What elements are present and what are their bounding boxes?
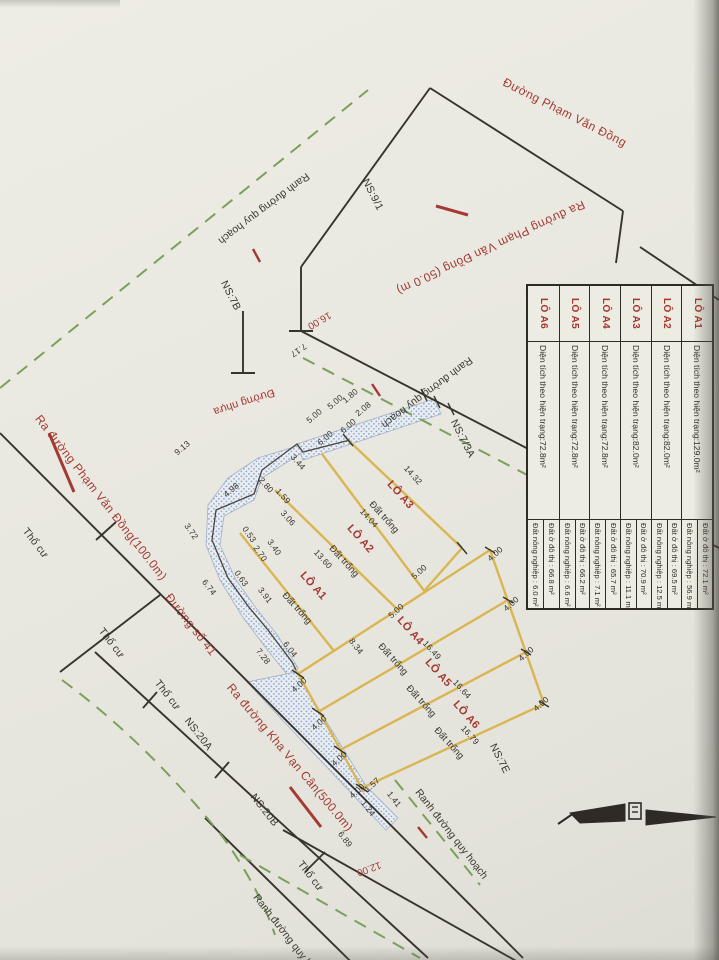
planning-label-topleft: Ranh đường quy hoạch	[216, 170, 312, 246]
dimension-label: 16.79	[459, 723, 481, 746]
table-cell-agri: Đất nông nghiệp : 6.0 m²	[528, 520, 543, 608]
dimension-label: 1.59	[274, 486, 293, 506]
table-row: LÔ A3 Diện tích theo hiện trạng:82.0m² Đ…	[620, 286, 651, 608]
existing-path-strip	[206, 399, 441, 830]
dimension-label: 3.91	[256, 585, 275, 605]
dimension-label: 1.41	[385, 789, 404, 809]
parcel-label-ns73a: NS:7/3A	[448, 418, 477, 460]
dimension-label: 6.89	[336, 829, 355, 849]
planning-curve-bottomleft	[62, 680, 275, 935]
table-cell-agri: Đất nông nghiệp : 6.6 m²	[560, 520, 575, 608]
table-cell-urban: Đất ở đô thị : 65.7 m²	[605, 520, 620, 608]
street-label-duong-so-41: Đường số 41	[163, 591, 220, 659]
pvd-road-corner-jog	[616, 211, 623, 263]
lot-status-a4: Đất trống	[376, 641, 410, 677]
dimension-label: 4.00	[485, 544, 505, 563]
dimension-label: 5.00	[304, 406, 324, 425]
table-cell-urban: Đất ở đô thị : 69.5 m²	[667, 520, 682, 608]
table-cell-urban: Đất ở đô thị : 70.9 m²	[636, 520, 651, 608]
table-row: LÔ A2 Diện tích theo hiện trạng:82.0m² Đ…	[651, 286, 682, 608]
parcel-label-ns7e: NS:7E	[487, 742, 512, 776]
parcel-label-ns91: NS:9/1	[360, 177, 386, 213]
parcel-label-ns7b: NS:7B	[218, 279, 243, 313]
table-cell-lot: LÔ A6	[528, 286, 559, 342]
lot-status-a1: Đất trống	[280, 590, 314, 626]
table-cell-area: Diện tích theo hiện trạng:72.8m²	[528, 342, 559, 520]
parcel-label-ns20b: NS:20B	[248, 791, 281, 828]
table-cell-area: Diện tích theo hiện trạng:82.0m²	[652, 342, 682, 520]
table-cell-lot: LÔ A2	[652, 286, 682, 342]
street-label-duong-nhua: Đường nhựa	[211, 386, 276, 417]
north-arrow-tail	[558, 813, 574, 824]
planning-line-topleft	[0, 90, 368, 388]
table-cell-urban: Đất ở đô thị : 66.8 m²	[543, 520, 558, 608]
red-underline-pvd50	[436, 206, 468, 215]
dimension-label: 4.00	[531, 694, 551, 713]
lot-info-table: LÔ A1 Diện tích theo hiện trạng:129.0m² …	[526, 284, 714, 610]
street-label-ra-pvd-100: Ra đường Phạm Văn Đồng(100.0m)	[32, 412, 170, 583]
scan-shadow-topleft	[0, 0, 120, 8]
lot-line-middle	[425, 548, 462, 590]
dimension-label: 2.80	[257, 475, 276, 495]
table-row: LÔ A6 Diện tích theo hiện trạng:72.8m² Đ…	[528, 286, 559, 608]
lot-label-a5: LÔ A5	[423, 656, 455, 690]
dimension-label: 12.00	[355, 859, 383, 878]
pvd-road-left-edge	[301, 88, 430, 267]
table-row: LÔ A4 Diện tích theo hiện trạng:72.8m² Đ…	[589, 286, 620, 608]
pvd-road-upper-edge	[430, 88, 623, 211]
table-cell-area: Diện tích theo hiện trạng:72.8m²	[560, 342, 590, 520]
parcel-label-tho-cu: Thổ cư	[20, 526, 51, 561]
street-label-pham-van-dong: Đường Phạm Văn Đồng	[501, 75, 629, 150]
parcel-label-tho-cu: Thổ cư	[96, 626, 127, 661]
lot-label-a1: LÔ A1	[298, 569, 330, 603]
dimension-label: 1.57	[362, 775, 382, 794]
north-arrow-left-wedge	[570, 804, 625, 823]
dimension-label: 14.32	[402, 463, 424, 486]
ns20-tick-1	[143, 692, 157, 708]
table-cell-lot: LÔ A3	[621, 286, 651, 342]
dimension-label: 8.34	[347, 636, 366, 656]
bottom-road-line-b	[205, 818, 400, 960]
dimension-label: 3.06	[279, 508, 298, 528]
table-row: LÔ A5 Diện tích theo hiện trạng:72.8m² Đ…	[559, 286, 590, 608]
dimension-label: 7.17	[289, 341, 309, 359]
parcel-labels: NS:9/1 NS:7B NS:7/3A NS:7E NS:20A NS:20B…	[20, 177, 512, 894]
dimension-label: 9.13	[172, 438, 192, 457]
planning-line-southeast	[395, 780, 480, 885]
dimension-label: 2.70	[251, 543, 269, 563]
table-cell-lot: LÔ A4	[590, 286, 620, 342]
table-cell-urban: Đất ở đô thị : 66.2 m²	[575, 520, 590, 608]
north-arrow-center-box	[629, 803, 641, 819]
scan-shadow-right	[693, 0, 719, 960]
table-cell-agri: Đất nông nghiệp : 7.1 m²	[590, 520, 605, 608]
dimension-label: 0.53	[240, 524, 258, 544]
lot-label-a3: LÔ A3	[385, 478, 417, 512]
dimension-label: 3.72	[182, 521, 200, 541]
dimension-label: 16.00	[305, 309, 333, 331]
table-cell-area: Diện tích theo hiện trạng:82.0m²	[621, 342, 651, 520]
table-cell-agri: Đất nông nghiệp : 12.5 m²	[652, 520, 667, 608]
dimension-label: 6.74	[200, 577, 219, 597]
table-cell-area: Diện tích theo hiện trạng:72.8m²	[590, 342, 620, 520]
dimension-label: 2.08	[353, 399, 373, 418]
street-41-tick	[96, 522, 116, 540]
scanned-cadastral-map: Đường Phạm Văn Đồng Ra đường Phạm Văn Đồ…	[0, 0, 719, 960]
dimension-label: 5.00	[409, 562, 429, 581]
dimension-label: 1.80	[340, 386, 360, 405]
red-tick	[253, 249, 260, 262]
dimension-label: 4.00	[516, 644, 536, 663]
scan-shadow-bottom	[0, 946, 719, 960]
table-cell-agri: Đất nông nghiệp : 11.1 m²	[621, 520, 636, 608]
street-label-ra-pvd-50: Ra đường Phạm Văn Đồng (50.0 m)	[394, 198, 587, 298]
table-cell-lot: LÔ A5	[560, 286, 590, 342]
red-tick	[418, 827, 427, 838]
